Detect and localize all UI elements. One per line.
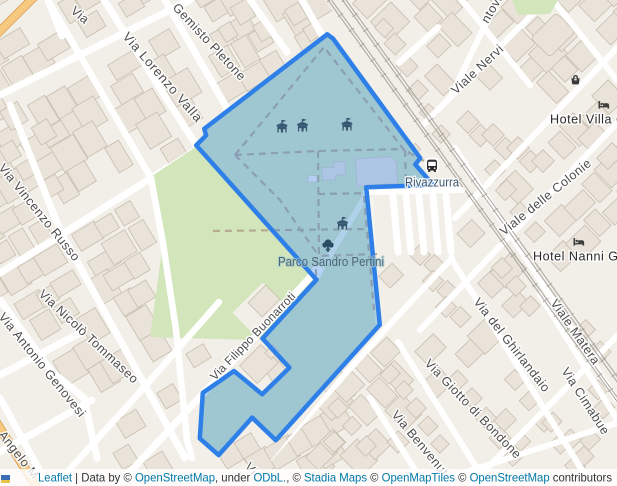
- svg-text:Parco Sandro Pertini: Parco Sandro Pertini: [278, 254, 384, 269]
- svg-text:Hotel Villa C: Hotel Villa C: [550, 113, 617, 127]
- svg-text:Leaflet | Data by © OpenStreet: Leaflet | Data by © OpenStreetMap, under…: [38, 471, 612, 485]
- svg-text:Hotel Nanni Gar: Hotel Nanni Gar: [533, 250, 617, 264]
- svg-text:Rivazzurra: Rivazzurra: [405, 175, 460, 190]
